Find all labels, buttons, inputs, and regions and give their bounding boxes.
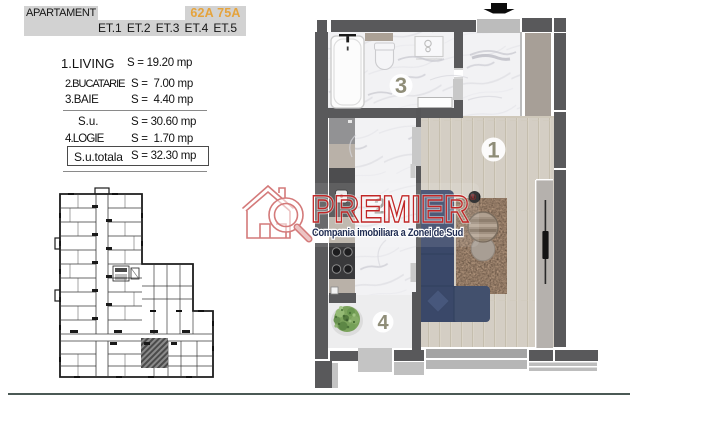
svg-text:3: 3 xyxy=(395,73,407,98)
svg-text:1: 1 xyxy=(487,138,499,163)
svg-text:®: ® xyxy=(470,193,476,202)
svg-text:PREMIER: PREMIER xyxy=(311,189,469,231)
svg-text:Compania imobiliara a Zonei de: Compania imobiliara a Zonei de Sud xyxy=(312,227,463,239)
svg-text:4: 4 xyxy=(377,312,389,334)
